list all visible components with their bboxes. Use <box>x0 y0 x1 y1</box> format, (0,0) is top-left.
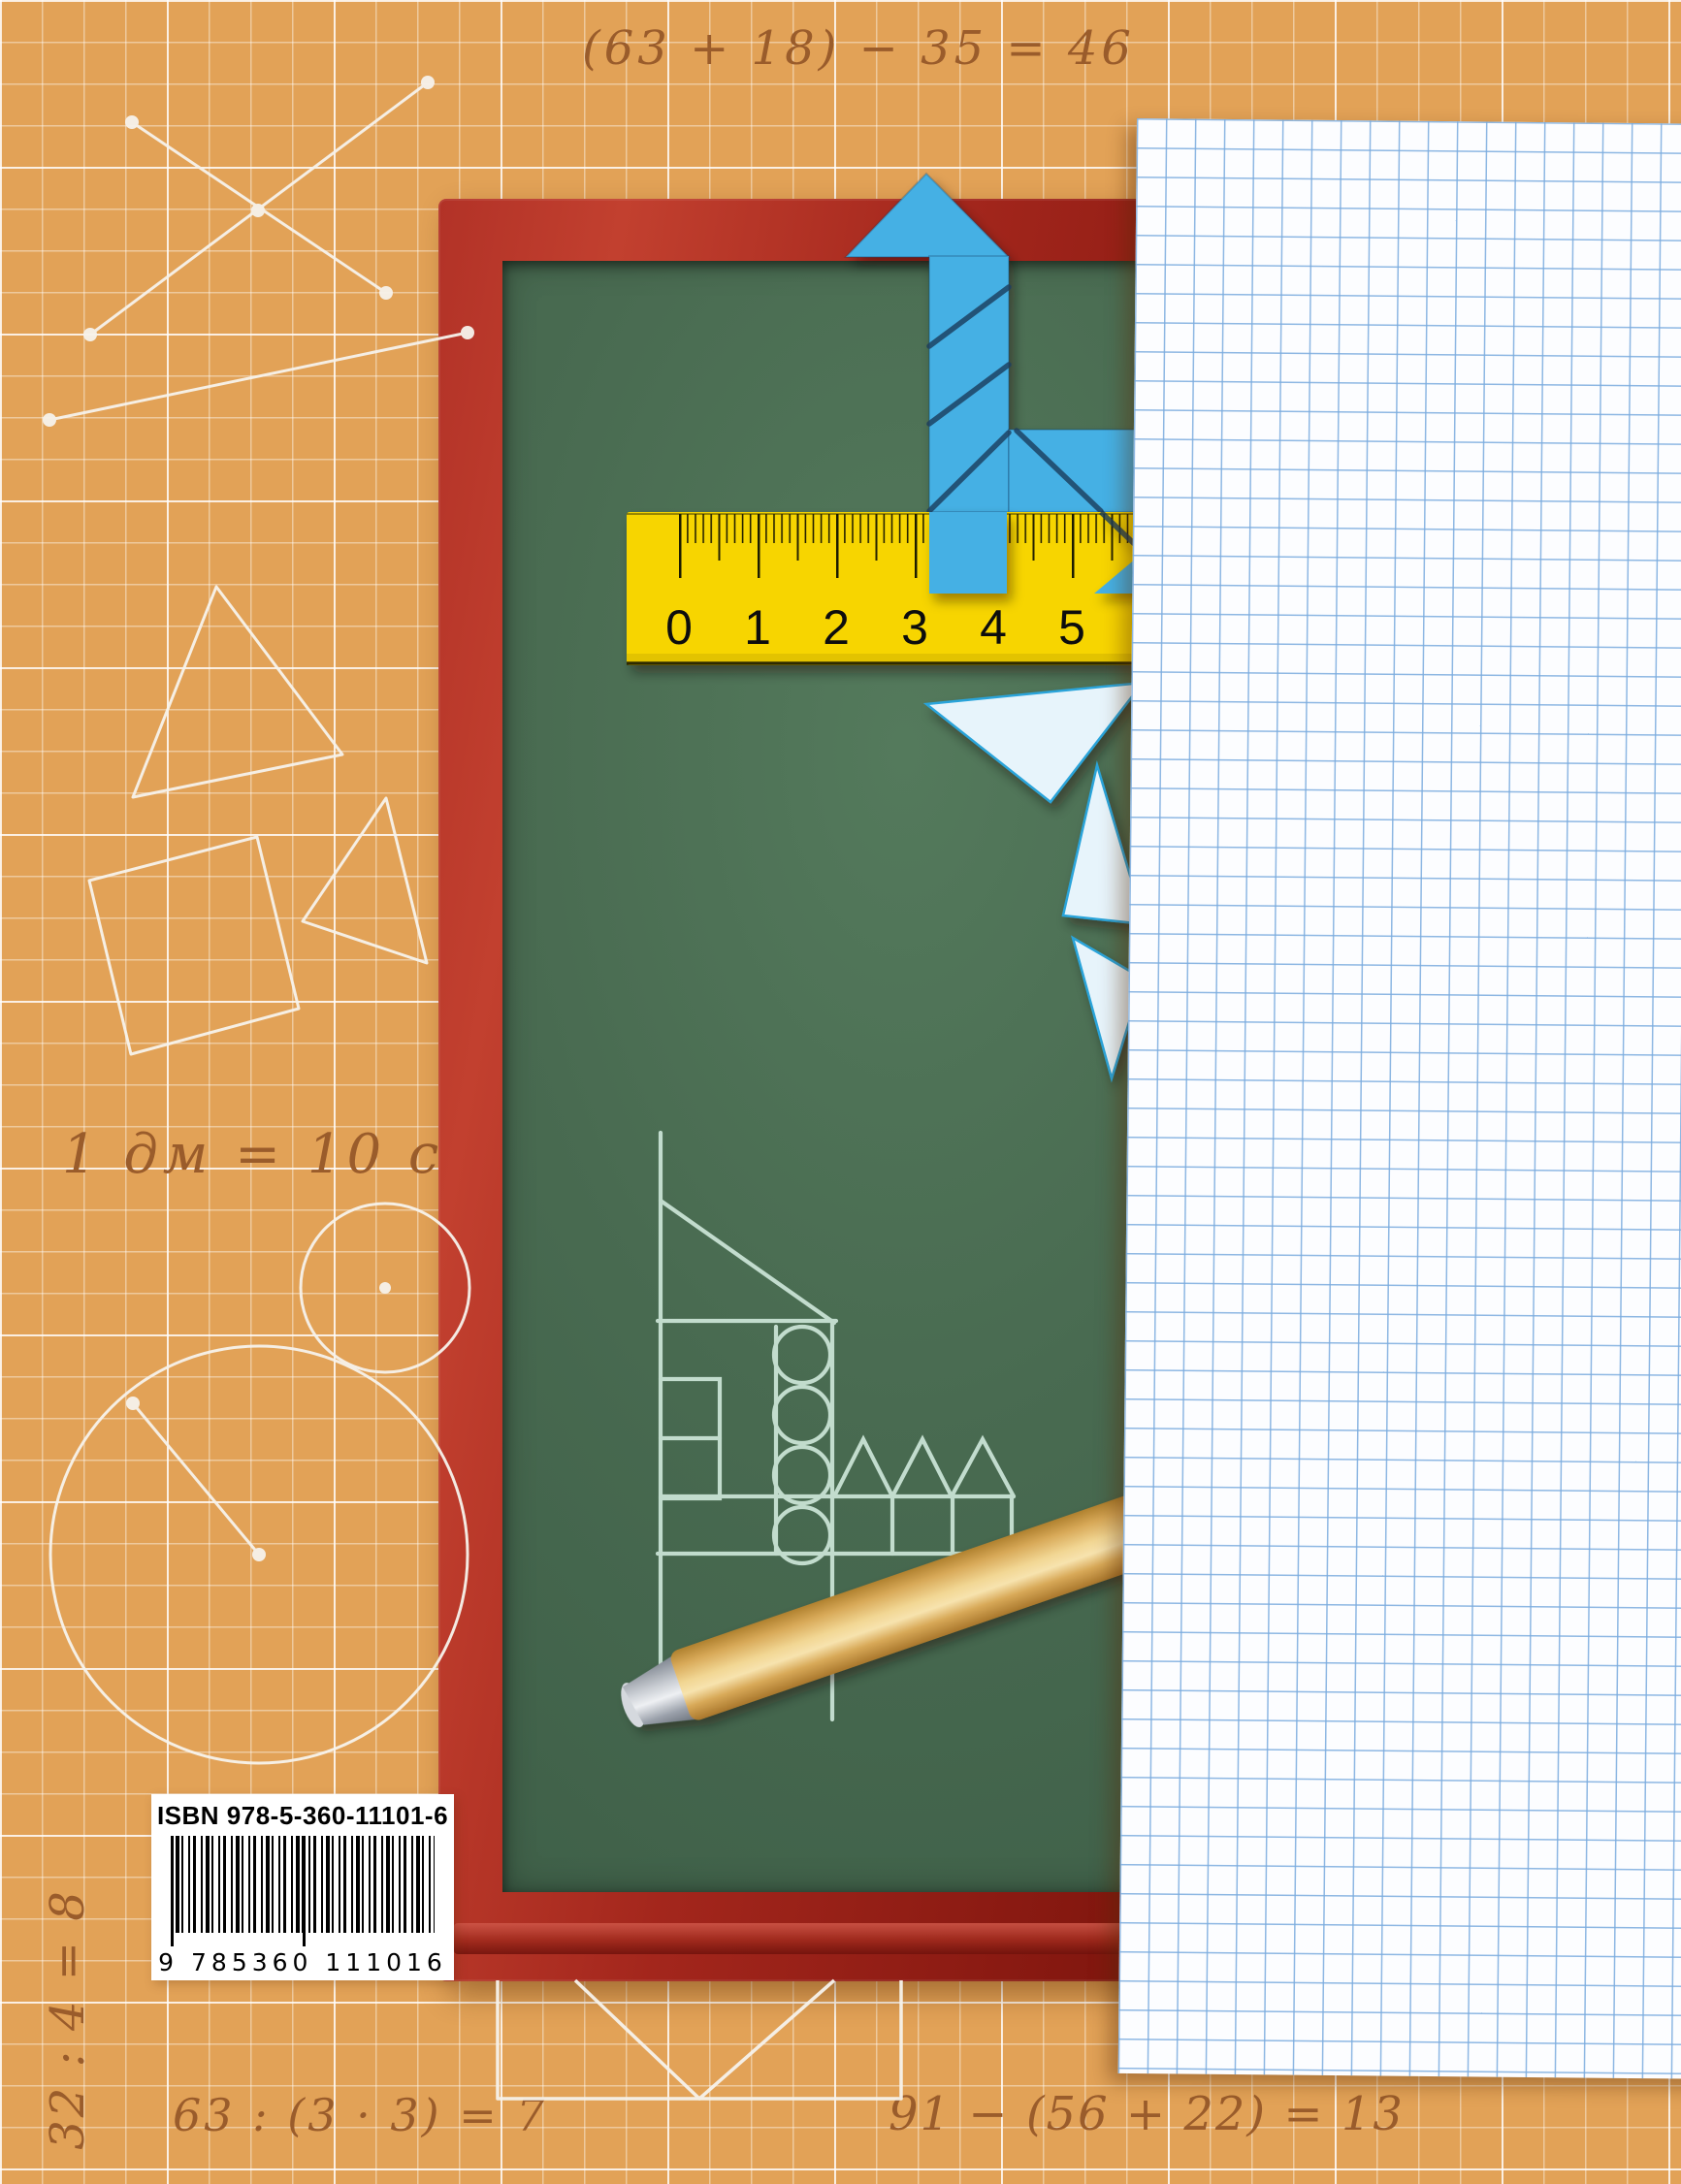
isbn-label: ISBN 978-5-360-11101-6 <box>151 1801 454 1831</box>
square-outline-rotated <box>89 837 299 1054</box>
handwritten-equation-top: (63 + 18) − 35 = 46 <box>582 21 1135 76</box>
envelope-outline-partial <box>498 1980 901 2099</box>
barcode-bars <box>171 1836 435 1933</box>
barcode-digits: 9 785360 111016 <box>151 1948 454 1976</box>
handwritten-equation-division: 63 : (3 · 3) = 7 <box>173 2089 548 2141</box>
handwritten-equation-bottom: 91 − (56 + 22) = 13 <box>889 2087 1405 2141</box>
book-back-cover: { "background": { "color": "#e2a257", "g… <box>0 0 1681 2184</box>
triangle-outline-small <box>303 798 427 963</box>
crossing-segments <box>43 76 474 427</box>
isbn-barcode: ISBN 978-5-360-11101-6 9 785360 111016 <box>151 1794 454 1980</box>
handwritten-equation-vertical: 32 : 4 = 8 <box>39 1874 97 2165</box>
handwritten-equation-dm-cm: 1 дм = 10 см <box>62 1123 494 1186</box>
triangle-outline-large <box>133 587 342 797</box>
circle-large-with-radius <box>50 1346 468 1763</box>
squared-notebook-sheet <box>1118 118 1681 2079</box>
